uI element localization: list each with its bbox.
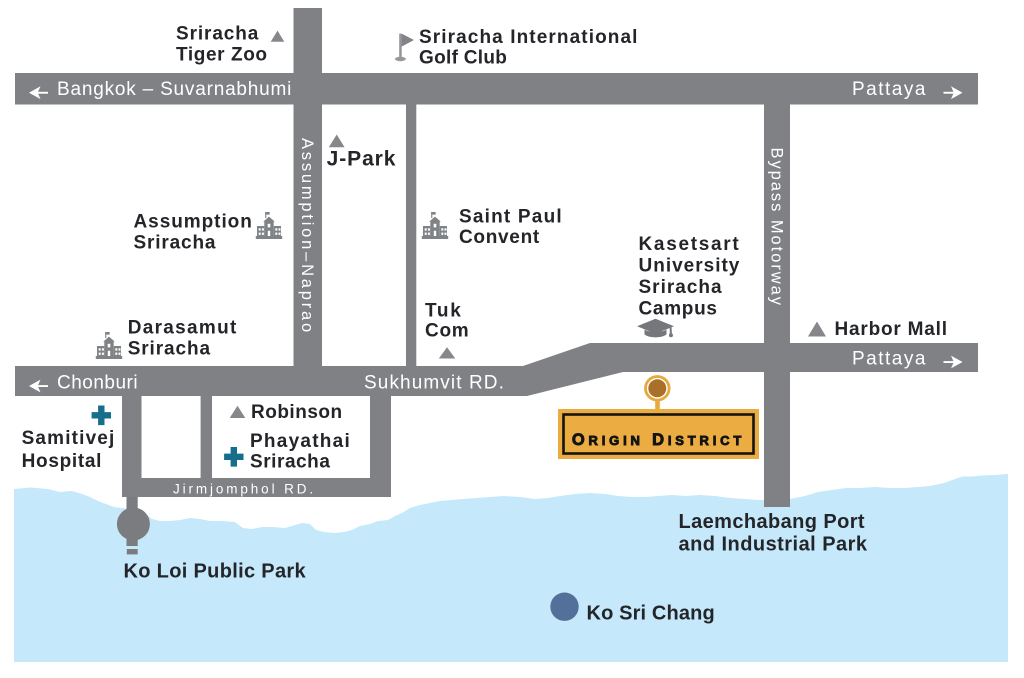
svg-text:Harbor Mall: Harbor Mall [835, 319, 948, 340]
svg-text:Assumption: Assumption [134, 212, 253, 233]
svg-text:Samitivej: Samitivej [22, 428, 116, 449]
svg-text:Tuk: Tuk [425, 301, 462, 322]
svg-text:Jirmjomphol RD.: Jirmjomphol RD. [173, 482, 316, 497]
svg-text:Sriracha: Sriracha [176, 24, 259, 45]
svg-text:Darasamut: Darasamut [128, 317, 238, 338]
svg-text:Sriracha: Sriracha [134, 233, 217, 254]
svg-text:Convent: Convent [459, 227, 540, 248]
svg-text:Pattaya: Pattaya [852, 349, 927, 370]
svg-text:Campus: Campus [639, 299, 718, 320]
svg-text:Assumption–Naprao: Assumption–Naprao [298, 138, 316, 335]
svg-text:J-Park: J-Park [327, 148, 397, 171]
svg-text:Ko Loi Public Park: Ko Loi Public Park [124, 561, 307, 583]
svg-text:Laemchabang Port: Laemchabang Port [679, 511, 865, 533]
svg-text:Golf Club: Golf Club [419, 48, 507, 69]
svg-text:University: University [639, 256, 741, 277]
svg-text:Sriracha: Sriracha [128, 338, 211, 359]
svg-text:Bypass Motorway: Bypass Motorway [768, 148, 786, 307]
svg-text:Sriracha International: Sriracha International [419, 27, 639, 48]
svg-text:Ko Sri Chang: Ko Sri Chang [587, 602, 715, 624]
svg-text:Bangkok – Suvarnabhumi: Bangkok – Suvarnabhumi [57, 79, 292, 100]
svg-text:Robinson: Robinson [251, 402, 343, 423]
svg-text:Phayathai: Phayathai [250, 431, 351, 452]
svg-text:Hospital: Hospital [22, 451, 103, 472]
svg-text:and Industrial Park: and Industrial Park [679, 534, 868, 556]
svg-text:Pattaya: Pattaya [852, 79, 927, 100]
svg-text:Sukhumvit RD.: Sukhumvit RD. [364, 373, 505, 394]
svg-text:ORIGIN DISTRICT: ORIGIN DISTRICT [572, 431, 745, 449]
svg-text:Sriracha: Sriracha [639, 277, 723, 298]
svg-text:Kasetsart: Kasetsart [639, 234, 741, 255]
svg-text:Chonburi: Chonburi [57, 373, 138, 394]
svg-text:Sriracha: Sriracha [250, 451, 330, 472]
svg-text:Tiger Zoo: Tiger Zoo [176, 45, 268, 66]
svg-text:Saint Paul: Saint Paul [459, 206, 563, 227]
svg-text:Com: Com [425, 321, 469, 342]
